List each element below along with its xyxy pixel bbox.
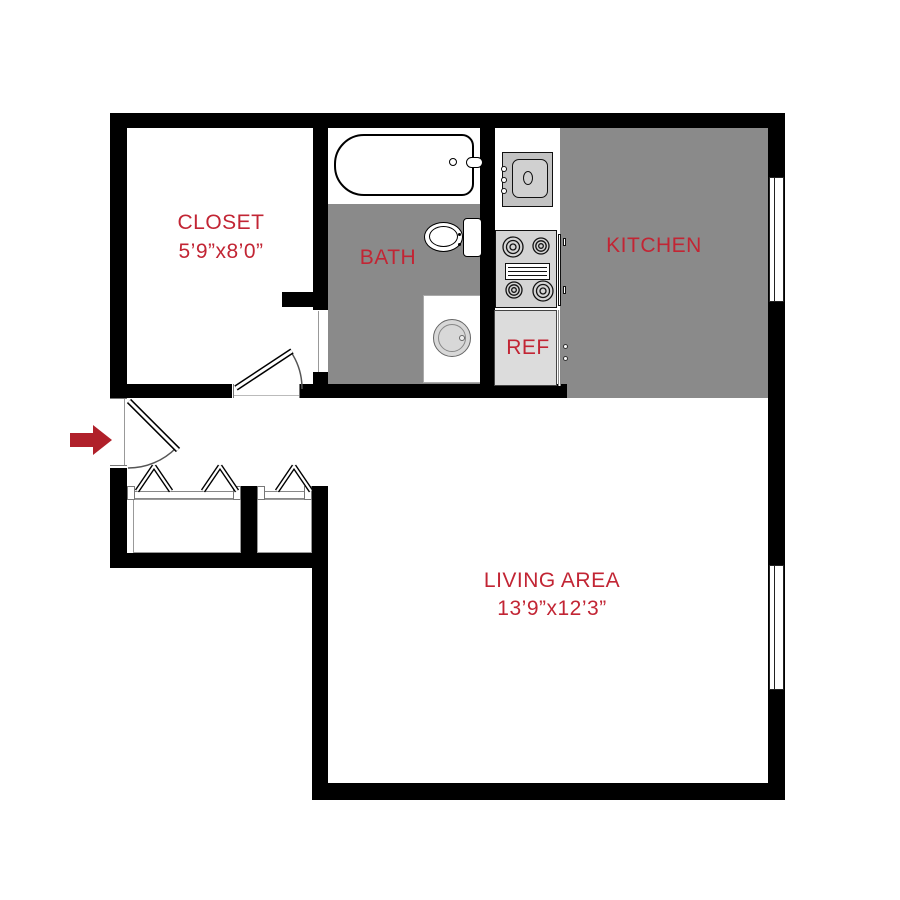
closet-door-threshold [234,395,299,396]
closet-door [236,351,302,389]
window-pane-line [774,566,775,689]
living-label: LIVING AREA [484,567,620,595]
toilet-bowl-inner [429,226,458,247]
closet-dimensions: 5’9”x8’0” [177,237,264,266]
closet-label: CLOSET [177,208,264,237]
toilet-tank [463,218,482,257]
washer-knob [459,335,465,341]
kitchen-sink-drain [523,171,533,185]
hall-closet-left-interior [133,499,241,553]
floor-plan: CLOSET 5’9”x8’0” BATH KITCHEN REF LIVING… [0,0,900,900]
bifold-track-left-a [133,491,241,492]
oven-handle-nub [563,286,566,294]
closet-door-jamb-right [299,384,300,398]
entry-door [128,401,178,468]
wall-mid-left [110,384,232,398]
wall-bottom [312,783,785,800]
sink-knob [501,177,507,183]
wall-closets-bottom [110,553,327,568]
hall-closet-right-interior [257,499,312,553]
toilet-bolt [458,243,461,246]
bifold-doors [137,466,311,491]
stove-grill [505,263,550,280]
sink-knob [501,188,507,194]
wall-bifold-separator [241,486,257,556]
kitchen-label: KITCHEN [606,231,702,260]
wall-closet-bath [313,128,328,310]
ref-label: REF [506,333,550,362]
window-pane-line [774,178,775,301]
bathtub-faucet [466,157,483,168]
bifold-jamb [233,486,241,500]
living-label-block: LIVING AREA 13’9”x12’3” [484,567,620,623]
bifold-track-left-b [133,498,241,499]
toilet-bolt [458,233,461,236]
refrigerator-hinge [563,356,568,361]
wall-mid-right [300,384,567,398]
wall-closet-stub [282,292,313,307]
oven-handle [558,234,561,306]
bifold-jamb [127,486,135,500]
kitchen-floor [560,128,768,398]
wall-top [110,113,785,128]
bathtub-drain [449,158,457,166]
kitchen-window [769,177,784,302]
refrigerator-door-edge [558,310,561,386]
bifold-jamb [304,486,312,500]
bath-doorway-threshold [318,311,319,372]
bifold-jamb [257,486,265,500]
wall-living-left [312,486,328,800]
entry-jamb-bottom [110,465,127,466]
entry-arrow-icon [70,425,112,455]
bath-doorway [313,310,328,372]
bath-label: BATH [360,243,416,272]
wall-bathdoor-stub [313,372,328,386]
wall-bath-kitchen [480,128,495,398]
sink-knob [501,166,507,172]
oven-handle-nub [563,238,566,246]
living-window [769,565,784,690]
entry-frame-line [124,399,125,465]
living-dimensions: 13’9”x12’3” [484,595,620,623]
refrigerator-hinge [563,344,568,349]
wall-left-upper [110,113,127,398]
closet-label-block: CLOSET 5’9”x8’0” [177,208,264,266]
